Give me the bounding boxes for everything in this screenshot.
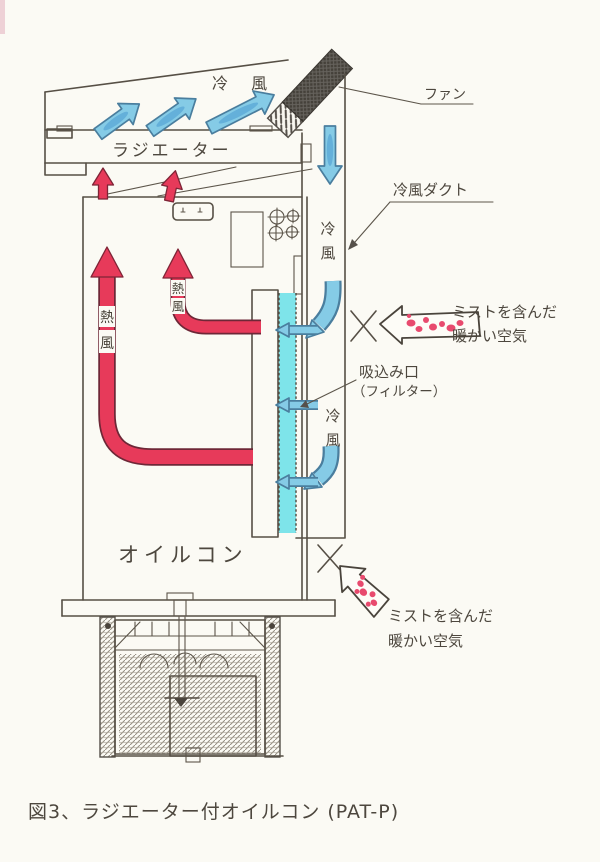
duct-cold-air-upper-char2: 風 bbox=[320, 244, 335, 262]
cold-air-duct-label: 冷風ダクト bbox=[393, 181, 468, 199]
fan-label: ファン bbox=[424, 87, 466, 103]
duct-cold-air-lower-char2: 風 bbox=[325, 431, 340, 449]
duct-cold-air-upper-char1: 冷 bbox=[320, 220, 335, 238]
hot-air-label-mid-char2: 風 bbox=[172, 299, 185, 314]
hot-air-label-left-char1: 熱 bbox=[100, 310, 114, 326]
oilcon-diagram: 熱 風 熱 風 bbox=[0, 0, 600, 862]
intake-port-label: 吸込み口 bbox=[359, 363, 419, 381]
mist-label-upper-line1: ミストを含んだ bbox=[452, 303, 557, 321]
figure-caption: 図3、ラジエーター付オイルコン (PAT-P) bbox=[28, 801, 399, 823]
scan-smudge bbox=[0, 0, 5, 34]
cold-air-top-label: 冷 風 bbox=[212, 74, 276, 93]
hot-air-label-left-char2: 風 bbox=[100, 336, 114, 352]
scanned-diagram-page: 熱 風 熱 風 bbox=[0, 0, 600, 862]
hot-air-label-mid-char1: 熱 bbox=[172, 281, 185, 296]
oilcon-label: オイルコン bbox=[118, 543, 248, 567]
mist-label-lower-line1: ミストを含んだ bbox=[388, 607, 493, 625]
mist-label-upper-line2: 暖かい空気 bbox=[452, 327, 527, 345]
mist-label-lower-line2: 暖かい空気 bbox=[388, 632, 463, 650]
intake-filter-label: （フィルター） bbox=[352, 384, 446, 400]
radiator-label: ラジエーター bbox=[112, 141, 232, 161]
duct-cold-air-lower-char1: 冷 bbox=[325, 407, 340, 425]
